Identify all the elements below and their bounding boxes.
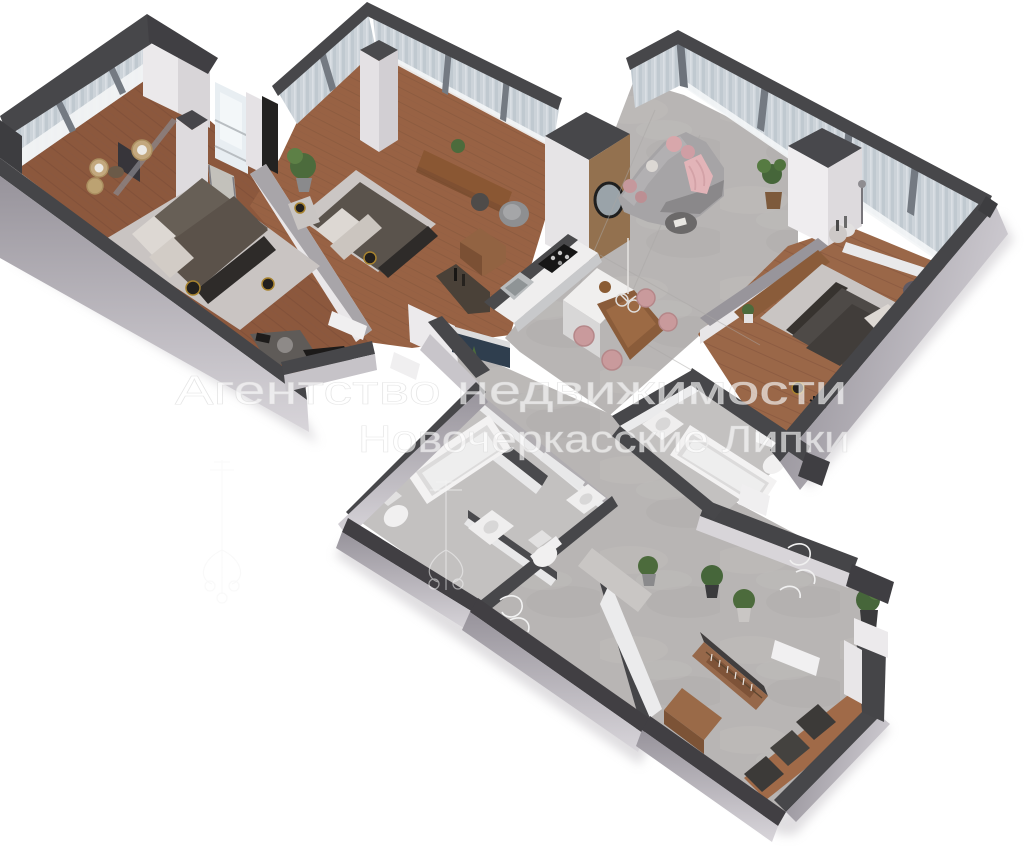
svg-text:Агентство недвижимости: Агентство недвижимости	[175, 367, 847, 413]
svg-text:Новочеркасские Липки: Новочеркасские Липки	[358, 419, 850, 461]
